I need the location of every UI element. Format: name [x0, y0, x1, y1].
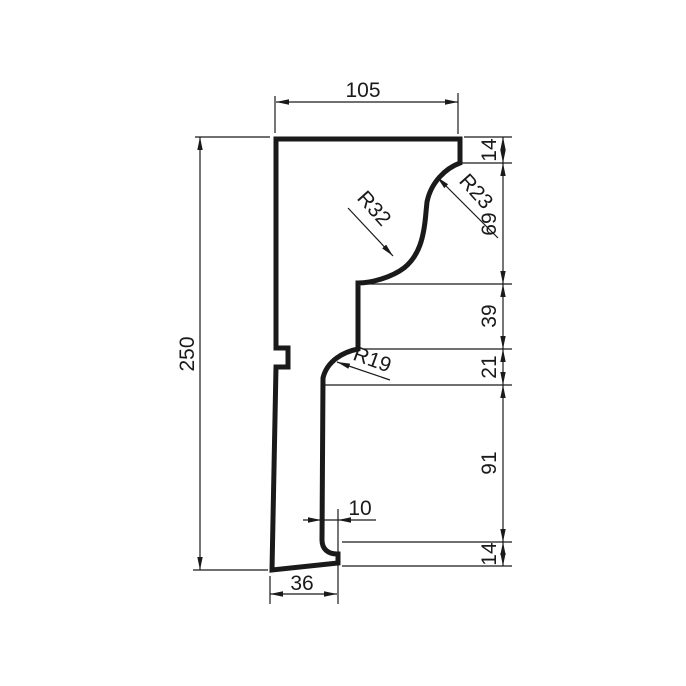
arrowhead: [276, 99, 289, 104]
arrowhead: [500, 349, 505, 362]
arrowhead: [197, 137, 202, 150]
arrowhead: [500, 529, 505, 542]
technical-drawing: 105 250 14 69 39 21 91 14: [0, 0, 686, 686]
dim-step-width: 10: [303, 497, 376, 604]
dim-top-width: 105: [275, 79, 458, 134]
arrowhead: [500, 336, 505, 349]
dim-label-right-14b: 14: [478, 542, 501, 566]
radius-label-r23: R23: [454, 170, 497, 214]
dim-label-step-width: 10: [348, 497, 371, 520]
dim-label-total-height: 250: [176, 336, 199, 371]
arrowhead: [445, 99, 458, 104]
arrowhead: [324, 591, 337, 596]
radius-callout-r32: R32: [348, 187, 395, 258]
dim-label-top-width: 105: [345, 79, 380, 102]
drawing-canvas: 105 250 14 69 39 21 91 14: [0, 0, 686, 686]
dim-label-right-91: 91: [478, 451, 501, 474]
dim-bottom-width: 36: [270, 572, 337, 604]
dim-label-bottom-width: 36: [290, 572, 313, 595]
arrowhead: [500, 150, 505, 163]
radius-label-r19: R19: [350, 342, 394, 377]
radius-label-r32: R32: [352, 187, 395, 231]
dim-total-height: 250: [176, 137, 270, 570]
arrowhead: [500, 553, 505, 566]
arrowhead: [500, 372, 505, 385]
arrowhead: [308, 517, 321, 522]
arrowhead: [197, 557, 202, 570]
arrowhead: [500, 385, 505, 398]
radius-callout-r19: R19: [336, 342, 394, 380]
radius-callout-r23: R23: [435, 170, 498, 238]
arrowhead: [500, 163, 505, 176]
arrowhead: [270, 591, 283, 596]
dim-label-right-39: 39: [478, 304, 501, 327]
dim-label-right-14a: 14: [478, 138, 501, 162]
dim-label-right-69: 69: [478, 212, 501, 235]
arrowhead: [500, 271, 505, 284]
arrowhead: [500, 137, 505, 150]
arrowhead: [500, 284, 505, 297]
dim-label-right-21: 21: [478, 355, 501, 378]
arrowhead: [336, 359, 350, 368]
